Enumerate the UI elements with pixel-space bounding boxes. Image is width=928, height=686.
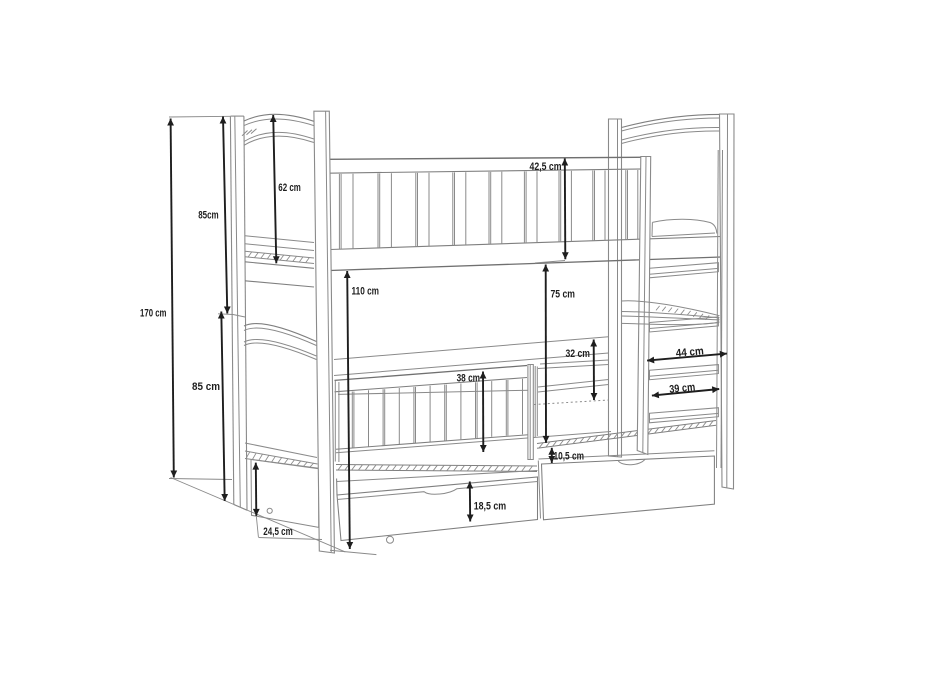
svg-text:24,5 cm: 24,5 cm bbox=[263, 526, 293, 538]
svg-text:170 cm: 170 cm bbox=[140, 308, 167, 320]
svg-text:18,5 cm: 18,5 cm bbox=[474, 501, 507, 513]
svg-text:62 cm: 62 cm bbox=[278, 182, 301, 194]
svg-text:39 cm: 39 cm bbox=[669, 381, 696, 395]
svg-text:85cm: 85cm bbox=[198, 210, 219, 222]
svg-text:75 cm: 75 cm bbox=[551, 289, 576, 301]
svg-text:32 cm: 32 cm bbox=[566, 348, 591, 360]
svg-text:38 cm: 38 cm bbox=[457, 373, 481, 385]
svg-text:85 cm: 85 cm bbox=[192, 381, 220, 393]
svg-text:42,5 cm: 42,5 cm bbox=[530, 161, 562, 173]
svg-text:44 cm: 44 cm bbox=[675, 345, 704, 359]
svg-text:110 cm: 110 cm bbox=[352, 286, 380, 298]
svg-text:10,5 cm: 10,5 cm bbox=[554, 450, 585, 462]
